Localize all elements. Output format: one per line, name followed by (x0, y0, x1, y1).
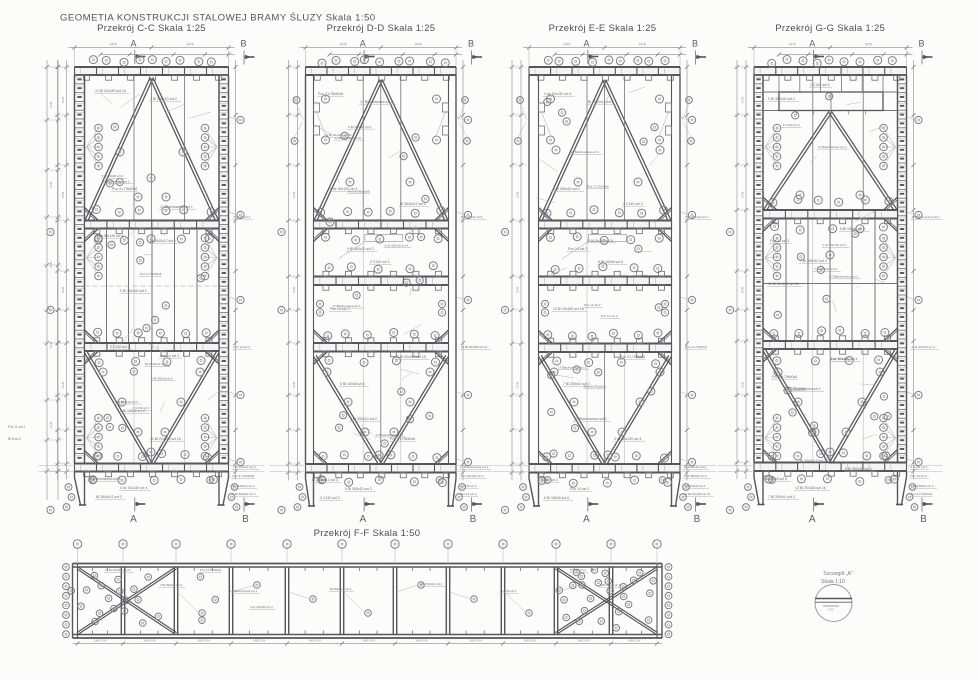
svg-text:1245: 1245 (292, 191, 296, 198)
svg-text:17 Blachownica szt 1: 17 Blachownica szt 1 (460, 465, 489, 469)
svg-text:7 Bl 250x10 szt 2: 7 Bl 250x10 szt 2 (150, 97, 177, 101)
svg-text:Poz 3 L75x50x8: Poz 3 L75x50x8 (685, 345, 707, 349)
svg-text:1460 5.04: 1460 5.04 (253, 639, 266, 643)
svg-text:1245: 1245 (292, 381, 296, 388)
svg-text:7 Bl 250x10 szt 2: 7 Bl 250x10 szt 2 (350, 417, 377, 421)
svg-text:7 Bl 250x10 szt 2: 7 Bl 250x10 szt 2 (233, 465, 256, 469)
svg-text:2476: 2476 (340, 43, 347, 47)
svg-text:Poz 3 L75x50x8: Poz 3 L75x50x8 (584, 385, 606, 389)
svg-text:Poz 3 L75x50x8: Poz 3 L75x50x8 (140, 272, 162, 276)
svg-text:4 dz 30x130 szt 4: 4 dz 30x130 szt 4 (250, 605, 273, 609)
svg-text:9 Bl 360x20 szt 2: 9 Bl 360x20 szt 2 (553, 187, 580, 191)
svg-text:Bl 2640x12 szt 2: Bl 2640x12 szt 2 (330, 587, 352, 591)
svg-text:Bl 2640x12 szt 2: Bl 2640x12 szt 2 (400, 202, 426, 206)
svg-text:4 dz 30x130 szt 4: 4 dz 30x130 szt 4 (385, 244, 409, 248)
svg-text:9 Bl 360x20 szt 2: 9 Bl 360x20 szt 2 (347, 247, 374, 251)
svg-text:1460 5.04: 1460 5.04 (577, 639, 590, 643)
svg-text:17 Blachownica szt 1: 17 Blachownica szt 1 (571, 150, 600, 154)
svg-text:Przekrój C-C Skala 1:25: Przekrój C-C Skala 1:25 (97, 23, 206, 34)
svg-text:Poz 3 L75x50x8: Poz 3 L75x50x8 (784, 386, 806, 390)
svg-text:Poz 14 szt 2: Poz 14 szt 2 (460, 492, 477, 496)
svg-text:Poz 14 szt 2: Poz 14 szt 2 (160, 354, 179, 358)
svg-text:5 Bl 160x8 szt 6: 5 Bl 160x8 szt 6 (151, 377, 173, 381)
svg-text:1245: 1245 (516, 191, 520, 198)
svg-text:4 dz 30x130 szt 4: 4 dz 30x130 szt 4 (544, 92, 571, 96)
svg-text:12 Bl 20x180 szt 16: 12 Bl 20x180 szt 16 (587, 239, 614, 243)
svg-text:A: A (583, 514, 590, 525)
svg-text:1245: 1245 (49, 101, 53, 108)
svg-text:2476: 2476 (865, 43, 872, 47)
svg-text:Poz 14 szt 2: Poz 14 szt 2 (911, 474, 928, 478)
svg-text:12 Bl 20x180 szt 16: 12 Bl 20x180 szt 16 (795, 486, 826, 490)
svg-text:Bl 8 szt 2: Bl 8 szt 2 (8, 437, 21, 441)
svg-text:2476: 2476 (415, 43, 422, 47)
svg-text:17 Blachownica szt 1: 17 Blachownica szt 1 (102, 179, 131, 183)
svg-text:B: B (692, 39, 698, 49)
svg-text:Poz 3 L75x50x8: Poz 3 L75x50x8 (200, 568, 221, 572)
svg-text:1245: 1245 (516, 286, 520, 293)
svg-text:9 Bl 360x20 szt 2: 9 Bl 360x20 szt 2 (345, 487, 372, 491)
svg-text:1460 5.04: 1460 5.04 (308, 639, 321, 643)
svg-text:Poz 3 L75x50x8: Poz 3 L75x50x8 (587, 184, 609, 188)
svg-text:Bl 2640x12 szt 2: Bl 2640x12 szt 2 (150, 239, 176, 243)
svg-text:1460 5.04: 1460 5.04 (415, 639, 428, 643)
svg-text:Poz 3 L75x50x8: Poz 3 L75x50x8 (348, 189, 370, 193)
svg-text:1460 5.04: 1460 5.04 (94, 639, 107, 643)
svg-text:7 Bl 250x10 szt 2: 7 Bl 250x10 szt 2 (800, 259, 827, 263)
svg-text:9 Bl 360x20 szt 2: 9 Bl 360x20 szt 2 (845, 467, 872, 471)
svg-text:1460 5.04: 1460 5.04 (523, 639, 536, 643)
svg-text:5 Bl 160x8 szt 6: 5 Bl 160x8 szt 6 (840, 227, 865, 231)
svg-text:1245: 1245 (741, 191, 745, 198)
svg-text:17 Blachownica szt 1: 17 Blachownica szt 1 (818, 145, 847, 149)
svg-text:12 Bl 20x180 szt 16: 12 Bl 20x180 szt 16 (150, 437, 181, 441)
svg-text:7 Bl 250x10 szt 2: 7 Bl 250x10 szt 2 (768, 495, 795, 499)
svg-text:17 Blachownica szt 1: 17 Blachownica szt 1 (360, 100, 393, 104)
svg-text:Przekrój E-E Skala 1:25: Przekrój E-E Skala 1:25 (549, 23, 657, 34)
svg-text:2 C140 szt 2: 2 C140 szt 2 (538, 478, 558, 482)
svg-text:2 C140 szt 2: 2 C140 szt 2 (911, 465, 928, 469)
svg-text:17 Blachownica szt 1: 17 Blachownica szt 1 (333, 304, 362, 308)
svg-text:1460 5.04: 1460 5.04 (197, 639, 210, 643)
svg-text:Poz 3 L75x50x8: Poz 3 L75x50x8 (233, 474, 255, 478)
svg-text:Poz 3 L75x50x8: Poz 3 L75x50x8 (112, 187, 137, 191)
svg-text:12 Bl 20x180 szt 16: 12 Bl 20x180 szt 16 (553, 307, 584, 311)
svg-text:7 Bl 250x10 szt 2: 7 Bl 250x10 szt 2 (814, 267, 837, 271)
svg-text:1245: 1245 (741, 286, 745, 293)
svg-text:2476: 2476 (789, 43, 796, 47)
svg-text:17 Blachownica szt 1: 17 Blachownica szt 1 (375, 433, 404, 437)
svg-text:4 dz 30x130 szt 4: 4 dz 30x130 szt 4 (460, 474, 484, 478)
svg-text:5 Bl 160x8 szt 6: 5 Bl 160x8 szt 6 (598, 260, 623, 264)
svg-text:Bl 2640x12 szt 2: Bl 2640x12 szt 2 (145, 362, 168, 366)
svg-text:1245: 1245 (49, 261, 53, 268)
svg-text:B: B (468, 39, 474, 49)
svg-text:Bl 2640x12 szt 2: Bl 2640x12 szt 2 (312, 478, 338, 482)
svg-text:1245: 1245 (49, 181, 53, 188)
svg-text:17 Blachownica szt 1: 17 Blachownica szt 1 (558, 365, 587, 369)
svg-text:B: B (918, 39, 924, 49)
svg-text:1460 5.04: 1460 5.04 (143, 639, 156, 643)
svg-text:12 Bl 20x180 szt 16: 12 Bl 20x180 szt 16 (105, 568, 131, 572)
svg-text:12 Bl 20x180 szt 16: 12 Bl 20x180 szt 16 (768, 282, 799, 286)
svg-text:Poz 3 L75x50x8: Poz 3 L75x50x8 (390, 437, 415, 441)
svg-text:Bl 2640x12 szt 2: Bl 2640x12 szt 2 (588, 100, 614, 104)
svg-text:2 C140 szt 2: 2 C140 szt 2 (320, 496, 340, 500)
svg-text:1245: 1245 (741, 381, 745, 388)
svg-text:Poz 14 szt 2: Poz 14 szt 2 (831, 357, 848, 361)
svg-text:A: A (360, 39, 366, 49)
svg-text:17 Blachownica szt 1: 17 Blachownica szt 1 (230, 589, 258, 593)
svg-text:2 C140 szt 2: 2 C140 szt 2 (110, 345, 130, 349)
svg-text:7 Bl 250x10 szt 2: 7 Bl 250x10 szt 2 (160, 583, 183, 587)
svg-text:17 Blachownica szt 1: 17 Blachownica szt 1 (574, 417, 607, 421)
svg-text:Poz 14 szt 2: Poz 14 szt 2 (234, 345, 251, 349)
svg-text:2 C140 szt 2: 2 C140 szt 2 (500, 589, 517, 593)
svg-text:17 Blachownica szt 1: 17 Blachownica szt 1 (88, 477, 121, 481)
svg-text:1460 5.04: 1460 5.04 (628, 639, 641, 643)
svg-text:5 Bl 160x8 szt 6: 5 Bl 160x8 szt 6 (684, 484, 706, 488)
svg-text:Poz 14 szt 2: Poz 14 szt 2 (770, 239, 789, 243)
svg-text:Poz 3 L75x50x8: Poz 3 L75x50x8 (772, 375, 797, 379)
svg-text:B: B (242, 514, 249, 525)
svg-text:9 Bl 360x20 szt 2: 9 Bl 360x20 szt 2 (768, 97, 795, 101)
svg-text:1245: 1245 (49, 341, 53, 348)
svg-text:A: A (130, 39, 136, 49)
svg-text:A: A (809, 39, 815, 49)
svg-text:A: A (809, 514, 816, 525)
svg-text:B: B (240, 39, 246, 49)
svg-text:9 Bl 360x20 szt 2: 9 Bl 360x20 szt 2 (420, 582, 443, 586)
svg-text:12 Bl 20x180 szt 16: 12 Bl 20x180 szt 16 (395, 355, 426, 359)
svg-text:1245: 1245 (61, 286, 65, 293)
svg-text:A: A (359, 514, 366, 525)
svg-text:7 Bl 250x10 szt 2: 7 Bl 250x10 szt 2 (911, 484, 934, 488)
svg-text:4 dz 30x130 szt 4: 4 dz 30x130 szt 4 (823, 243, 847, 247)
svg-text:5 Bl 160x8 szt 6: 5 Bl 160x8 szt 6 (600, 583, 621, 587)
svg-text:4 dz 30x130 szt 4: 4 dz 30x130 szt 4 (912, 345, 936, 349)
svg-text:2476: 2476 (186, 43, 193, 47)
svg-text:Poz 3 L75x50x8: Poz 3 L75x50x8 (911, 492, 933, 496)
svg-text:B: B (470, 514, 477, 525)
svg-text:Przekrój D-D Skala 1:25: Przekrój D-D Skala 1:25 (327, 23, 436, 34)
svg-text:P10: P10 (828, 608, 834, 612)
svg-text:2 C140 szt 2: 2 C140 szt 2 (623, 202, 643, 206)
svg-text:9 Bl 360x20 szt 2: 9 Bl 360x20 szt 2 (348, 125, 371, 129)
svg-text:12 Bl 20x180 szt 16: 12 Bl 20x180 szt 16 (95, 89, 126, 93)
svg-text:B: B (920, 514, 927, 525)
svg-text:12 Bl 20x180 szt 16: 12 Bl 20x180 szt 16 (461, 345, 488, 349)
svg-text:Poz 3 L75x50x8: Poz 3 L75x50x8 (620, 355, 645, 359)
svg-text:Poz 14 szt 2: Poz 14 szt 2 (570, 568, 586, 572)
svg-text:1245: 1245 (292, 286, 296, 293)
svg-text:7 Bl 250x10 szt 2: 7 Bl 250x10 szt 2 (115, 400, 138, 404)
svg-text:Bl 2640x12 szt 2: Bl 2640x12 szt 2 (684, 465, 707, 469)
svg-text:4 dz 30x130 szt 4: 4 dz 30x130 szt 4 (96, 234, 123, 238)
svg-text:5 Bl 160x8 szt 6: 5 Bl 160x8 szt 6 (340, 382, 365, 386)
svg-text:2 C140 szt 2: 2 C140 szt 2 (783, 123, 800, 127)
svg-text:Poz 14 szt 2: Poz 14 szt 2 (584, 303, 601, 307)
svg-text:2476: 2476 (563, 43, 570, 47)
svg-text:12 Bl 20x180 szt 16: 12 Bl 20x180 szt 16 (325, 133, 352, 137)
svg-text:1460 5.04: 1460 5.04 (362, 639, 375, 643)
svg-text:A: A (583, 39, 589, 49)
svg-text:9 Bl 360x20 szt 2: 9 Bl 360x20 szt 2 (120, 289, 147, 293)
svg-text:2 C140 szt 2: 2 C140 szt 2 (810, 83, 830, 87)
svg-text:B: B (694, 514, 701, 525)
svg-text:17 Blachownica szt 1: 17 Blachownica szt 1 (830, 275, 859, 279)
svg-text:5 Bl 160x8 szt 6: 5 Bl 160x8 szt 6 (102, 174, 124, 178)
svg-text:12 Bl 20x180 szt 16: 12 Bl 20x180 szt 16 (684, 492, 711, 496)
svg-text:1245: 1245 (61, 96, 65, 103)
svg-text:Przekrój G-G Skala 1:25: Przekrój G-G Skala 1:25 (775, 23, 885, 34)
svg-text:5 Bl 160x8 szt 6: 5 Bl 160x8 szt 6 (762, 477, 787, 481)
svg-text:Poz 11 szt 2: Poz 11 szt 2 (8, 425, 26, 429)
svg-text:1245: 1245 (61, 191, 65, 198)
svg-text:17 Blachownica szt 1: 17 Blachownica szt 1 (160, 205, 193, 209)
svg-text:9 Bl 360x20 szt 2: 9 Bl 360x20 szt 2 (684, 474, 707, 478)
svg-text:A: A (130, 514, 137, 525)
svg-text:GEOMETIA KONSTRUKCJI STALOWEJ: GEOMETIA KONSTRUKCJI STALOWEJ BRAMY ŚLUZ… (60, 12, 376, 24)
svg-text:Poz 14 szt 2: Poz 14 szt 2 (601, 314, 618, 318)
svg-text:2476: 2476 (639, 43, 646, 47)
svg-text:1460 5.04: 1460 5.04 (469, 639, 482, 643)
svg-text:2 C140 szt 2: 2 C140 szt 2 (133, 406, 150, 410)
svg-text:1245: 1245 (61, 381, 65, 388)
svg-text:Bl 2640x12 szt 2: Bl 2640x12 szt 2 (800, 459, 826, 463)
svg-text:Poz 14 szt 2: Poz 14 szt 2 (568, 247, 587, 251)
svg-text:9 Bl 360x20 szt 2: 9 Bl 360x20 szt 2 (233, 492, 256, 496)
svg-text:5 Bl 160x8 szt 6: 5 Bl 160x8 szt 6 (544, 496, 569, 500)
svg-text:4 dz 30x130 szt 4: 4 dz 30x130 szt 4 (120, 486, 147, 490)
svg-text:Bl 2640x12 szt 2: Bl 2640x12 szt 2 (233, 484, 256, 488)
svg-text:Poz 3 L75x50x8: Poz 3 L75x50x8 (318, 92, 343, 96)
svg-text:2476: 2476 (109, 43, 116, 47)
svg-text:1245: 1245 (516, 381, 520, 388)
svg-text:1245: 1245 (49, 421, 53, 428)
svg-text:1245: 1245 (741, 96, 745, 103)
svg-text:2 C140 szt 2: 2 C140 szt 2 (460, 484, 477, 488)
svg-text:Szczegół „A”: Szczegół „A” (823, 571, 853, 577)
svg-text:Przekrój F-F Skala 1:50: Przekrój F-F Skala 1:50 (314, 528, 421, 539)
svg-text:Bl 2640x12 szt 2: Bl 2640x12 szt 2 (96, 495, 122, 499)
svg-text:Poz 14 szt 2: Poz 14 szt 2 (570, 487, 589, 491)
svg-text:4 dz 30x130 szt 4: 4 dz 30x130 szt 4 (614, 437, 641, 441)
svg-text:2 C140 szt 2: 2 C140 szt 2 (370, 260, 390, 264)
